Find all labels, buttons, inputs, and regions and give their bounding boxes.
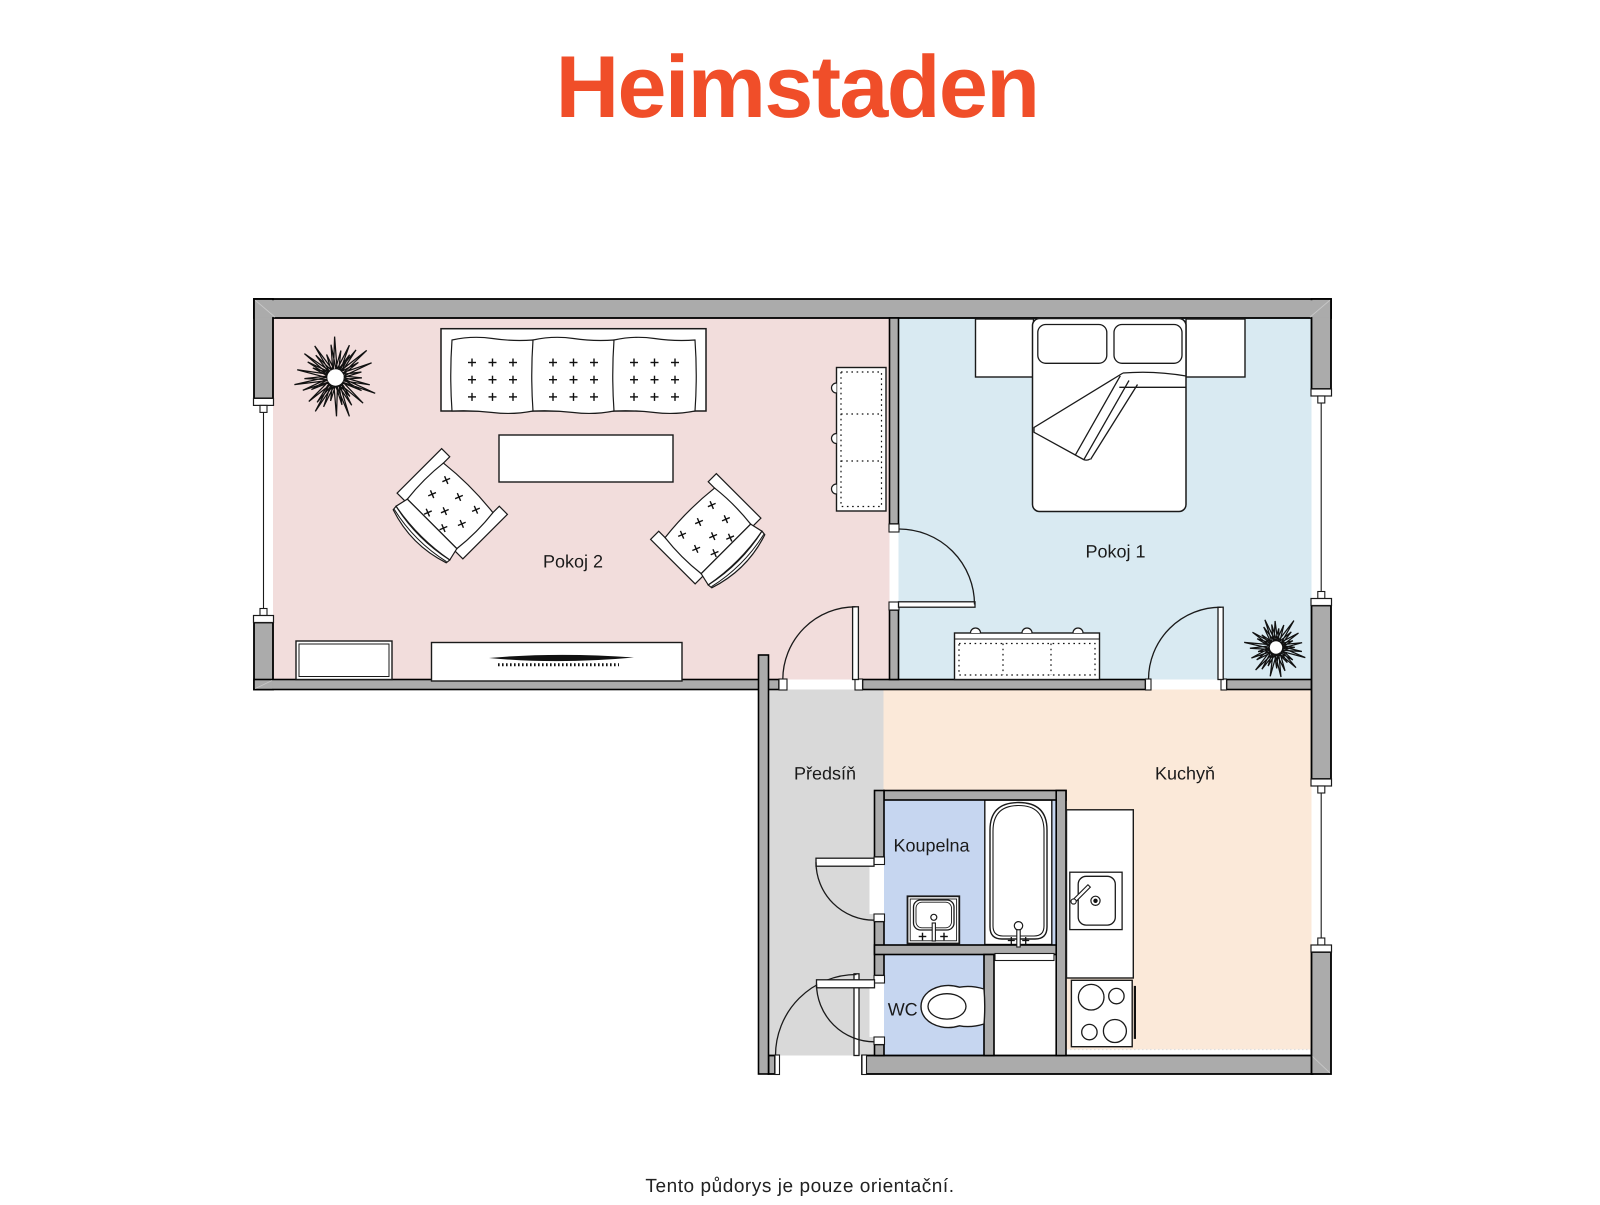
svg-text:Pokoj 1: Pokoj 1 (1085, 542, 1145, 562)
svg-text:Předsíň: Předsíň (794, 763, 856, 783)
svg-text:Kuchyň: Kuchyň (1155, 763, 1215, 783)
svg-text:WC: WC (888, 999, 918, 1019)
svg-text:Pokoj 2: Pokoj 2 (543, 552, 603, 572)
svg-text:Koupelna: Koupelna (893, 836, 970, 856)
